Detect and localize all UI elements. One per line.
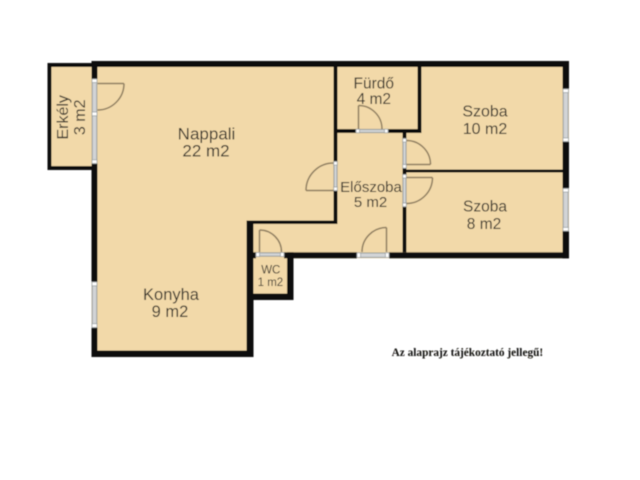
svg-text:8 m2: 8 m2 bbox=[467, 216, 501, 233]
svg-text:10 m2: 10 m2 bbox=[463, 121, 508, 138]
svg-text:5 m2: 5 m2 bbox=[354, 194, 387, 211]
svg-text:Konyha: Konyha bbox=[143, 286, 200, 304]
svg-text:Szoba: Szoba bbox=[462, 103, 507, 120]
svg-text:3 m2: 3 m2 bbox=[72, 99, 89, 135]
svg-text:9 m2: 9 m2 bbox=[152, 303, 189, 321]
svg-text:22 m2: 22 m2 bbox=[182, 142, 229, 161]
svg-text:WC: WC bbox=[261, 264, 280, 276]
svg-text:1 m2: 1 m2 bbox=[258, 277, 284, 289]
svg-text:Az alaprajz tájékoztató jelleg: Az alaprajz tájékoztató jellegű! bbox=[392, 347, 544, 359]
svg-text:Erkély: Erkély bbox=[55, 95, 72, 139]
svg-text:4 m2: 4 m2 bbox=[357, 91, 391, 108]
svg-text:Szoba: Szoba bbox=[463, 199, 507, 216]
svg-text:Fürdő: Fürdő bbox=[354, 76, 395, 93]
